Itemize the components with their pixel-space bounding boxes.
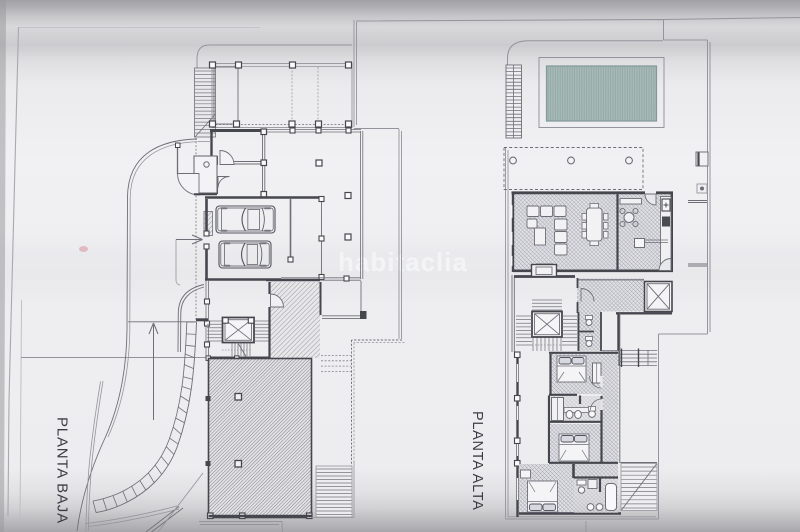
svg-text:PLANTA BAJA: PLANTA BAJA [54,417,71,524]
svg-text:habitaclia: habitaclia [338,247,468,277]
svg-text:PLANTA ALTA: PLANTA ALTA [469,411,485,511]
